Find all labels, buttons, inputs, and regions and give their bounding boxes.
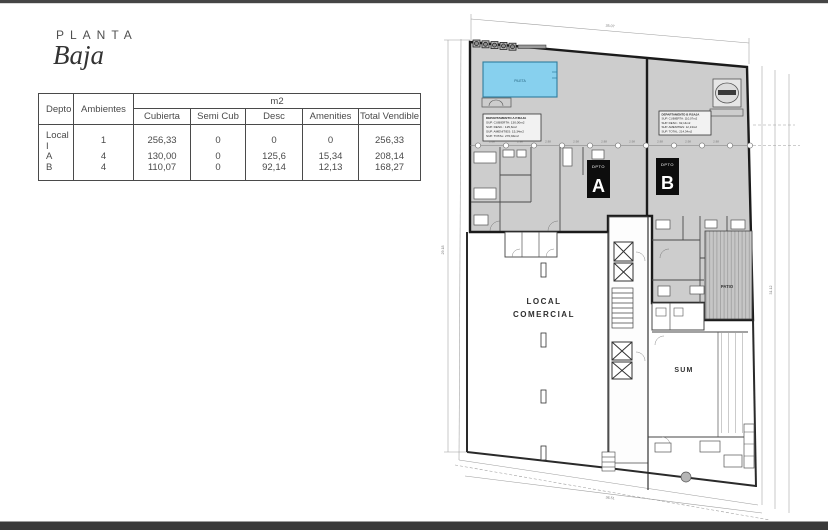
info-a-line: DEPARTAMENTO A P.BAJA — [486, 116, 527, 120]
local-label-line1: LOCAL — [526, 297, 561, 306]
info-a-line: SUP. DESC.: 125,6m2 — [486, 125, 517, 129]
b-lower-rooms — [652, 303, 704, 330]
floor-plan: 35.07 29.18 31.12 36.51 2.88 2.98 2.88 — [0, 0, 828, 530]
local-label-line2: COMERCIAL — [513, 310, 575, 319]
local-comercial: LOCAL COMERCIAL — [467, 232, 608, 468]
elevator-core — [609, 217, 648, 463]
info-a-line: SUP. TOTAL: 270,94m2 — [486, 134, 519, 138]
bay-dim: 2.88 — [657, 140, 663, 144]
pool-label: PILETA — [514, 79, 526, 83]
top-frame-bar — [0, 0, 828, 3]
dpto-a-caption: DPTO — [592, 164, 605, 169]
elevator-icon — [614, 263, 633, 281]
dim-right: 31.12 — [769, 286, 773, 295]
patio: PATIO — [705, 231, 752, 319]
dpto-a-label: DPTO A — [587, 160, 610, 198]
dpto-b-label: DPTO B — [656, 158, 679, 195]
stairs-icon — [612, 288, 633, 328]
info-a-line: SUP. AMENITIES: 15,34m2 — [486, 130, 524, 134]
dpto-a-letter: A — [592, 176, 605, 196]
bay-dim: 2.98 — [573, 140, 579, 144]
pool-steps — [482, 98, 511, 107]
bay-dim: 2.88 — [545, 140, 551, 144]
dim-bottom: 36.51 — [605, 495, 614, 500]
bottom-frame-bar — [0, 522, 828, 530]
bay-dim: 2.98 — [629, 140, 635, 144]
dpto-b-letter: B — [661, 173, 674, 193]
info-b-line: SUP. TOTAL: 214,34m2 — [662, 129, 693, 133]
service-rooms-block — [505, 232, 557, 257]
plan-sheet: PLANTA Baja Depto Ambientes m2 Cubierta … — [0, 0, 828, 530]
info-box-a: DEPARTAMENTO A P.BAJA SUP. CUBIERTA: 130… — [483, 114, 541, 141]
elevator-icon — [614, 242, 633, 261]
patio-label: PATIO — [721, 284, 734, 289]
elevator-icon — [612, 342, 632, 360]
bay-dim: 2.88 — [601, 140, 607, 144]
deck-strip — [719, 333, 749, 433]
info-box-b: DEPARTAMENTO B P.BAJA SUP. CUBIERTA: 110… — [659, 111, 711, 135]
planter-circle — [681, 472, 691, 482]
entry-stairs-icon — [602, 452, 615, 471]
dpto-b-caption: DPTO — [661, 162, 674, 167]
bay-dim: 2.98 — [685, 140, 691, 144]
elevator-icon — [612, 362, 632, 379]
dim-top: 35.07 — [605, 24, 614, 29]
sum-label: SUM — [674, 367, 693, 374]
dim-left: 29.18 — [441, 246, 445, 255]
info-a-line: SUP. CUBIERTA: 130,00m2 — [486, 121, 525, 125]
bay-dim: 2.88 — [713, 140, 719, 144]
